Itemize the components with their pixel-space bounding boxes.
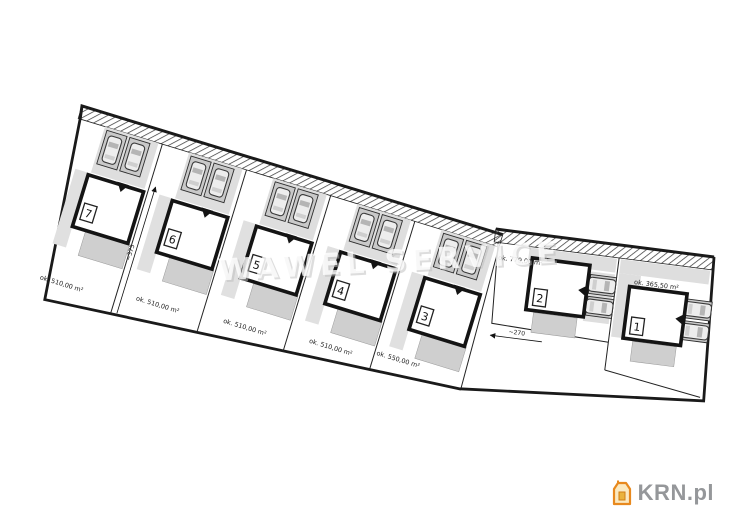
krn-logo-text: KRN.pl [638, 480, 714, 506]
car-icon [681, 323, 710, 340]
car-icon [683, 301, 712, 318]
plot-area-label: ok. 510,00 m² [222, 317, 268, 338]
car-icon [588, 277, 617, 294]
site-plan-svg: 7 ok. 510,00 m² 6 ok. 510,00 m² [0, 0, 740, 514]
plot-area-label: ok. 550,00 m² [376, 349, 422, 370]
plot-7: 7 ok. 510,00 m² [39, 121, 161, 303]
dimension-width-label: ~270 [508, 329, 525, 338]
car-icon [585, 299, 614, 316]
plot-area-label: ok. 510,00 m² [135, 294, 181, 315]
site-plan-image: 7 ok. 510,00 m² 6 ok. 510,00 m² [0, 0, 740, 514]
plot-1: 1 ok. 365,50 m² [608, 259, 716, 370]
house-1 [623, 287, 687, 346]
krn-logo: KRN.pl [610, 479, 714, 506]
krn-logo-house-icon [610, 479, 634, 506]
plot-area-label: ok. 510,00 m² [308, 337, 354, 358]
